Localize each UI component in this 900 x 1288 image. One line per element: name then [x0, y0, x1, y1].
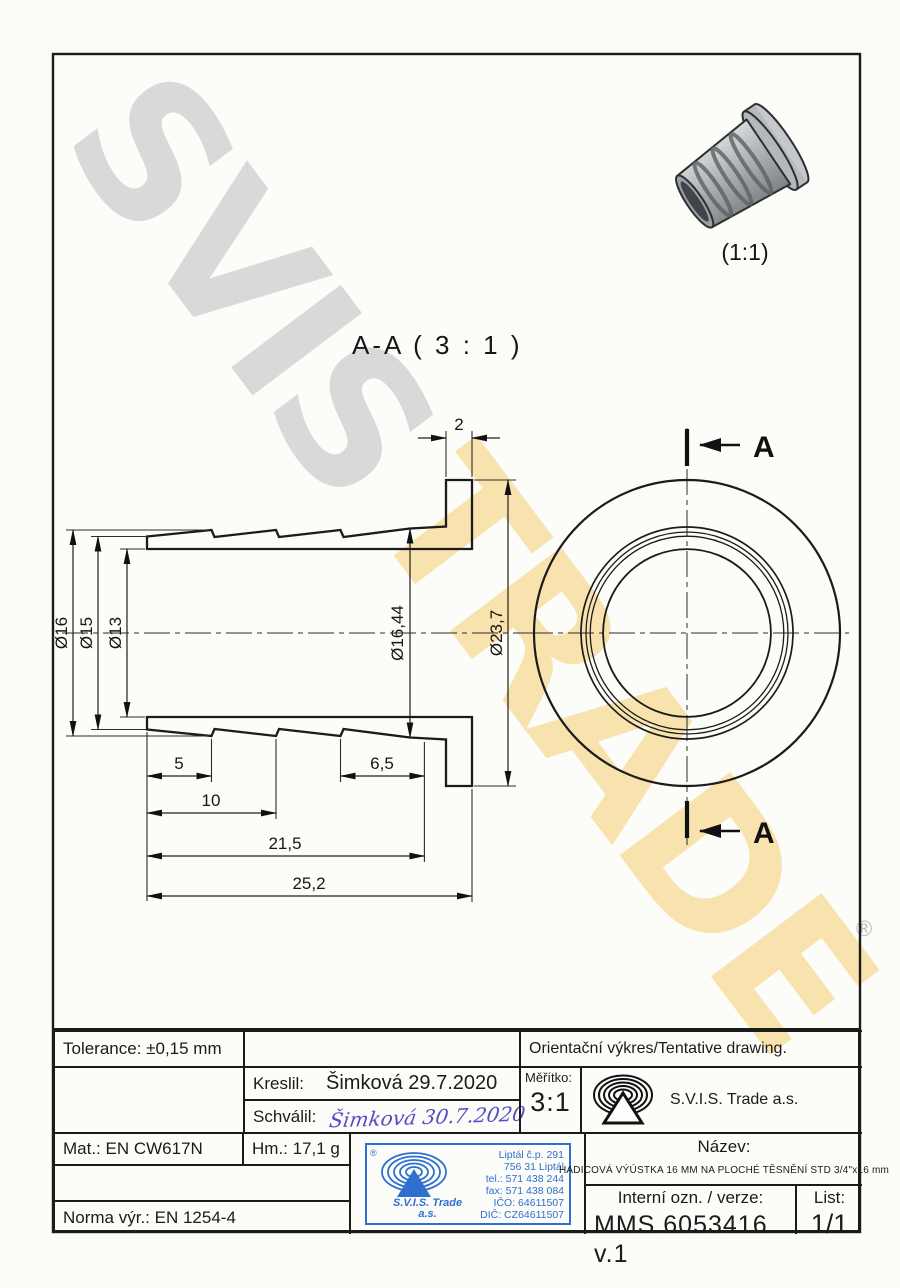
list-cell: List: 1/1 [795, 1184, 862, 1234]
dim-215-label: 21,5 [268, 834, 301, 853]
title-block: Tolerance: ±0,15 mm Orientační výkres/Te… [53, 1028, 860, 1232]
mat-text: Mat.: EN CW617N [63, 1139, 203, 1159]
kreslil-label: Kreslil: [253, 1074, 304, 1094]
mat-cell: Mat.: EN CW617N [55, 1132, 242, 1164]
company-stamp: ® S.V.I.S. Trade a.s. Liptá [365, 1143, 571, 1225]
meritko-cell: Měřítko: 3:1 [519, 1066, 580, 1132]
list-label: List: [814, 1188, 845, 1208]
dim-od1644-label: Ø16,44 [388, 605, 407, 661]
empty-cell-top [243, 1030, 519, 1066]
norma-text: Norma výr.: EN 1254-4 [63, 1208, 236, 1228]
norma-cell: Norma výr.: EN 1254-4 [55, 1200, 349, 1234]
company-name: S.V.I.S. Trade a.s. [670, 1091, 798, 1109]
empty-cell-mid [55, 1164, 349, 1200]
extension-lines [66, 431, 516, 902]
meritko-label: Měřítko: [525, 1070, 572, 1085]
svis-logo-black [590, 1071, 656, 1129]
scanned-drawing-page: SVIS TRADE ® [0, 0, 900, 1288]
dim-od237-label: Ø23,7 [487, 610, 506, 656]
empty-cell-left [55, 1066, 243, 1132]
hm-text: Hm.: 17,1 g [252, 1139, 340, 1159]
tolerance-text: Tolerance: ±0,15 mm [63, 1039, 222, 1059]
section-label-a-bottom: A [753, 817, 775, 850]
part-name: HADICOVÁ VÝÚSTKA 16 MM NA PLOCHÉ TĚSNĚNÍ… [559, 1165, 889, 1176]
schvalil-cell: Schválil: Šimková 30.7.2020 [243, 1099, 519, 1132]
kreslil-value: Šimková 29.7.2020 [326, 1072, 497, 1095]
dim-5-label: 5 [174, 754, 183, 773]
dim-10-label: 10 [202, 791, 221, 810]
dim-od15-label: Ø15 [77, 617, 96, 649]
dim-2-label: 2 [454, 415, 463, 434]
stamp-dic: DIČ: CZ64611507 [480, 1209, 564, 1221]
front-view: A A [527, 428, 849, 850]
svis-logo-blue [375, 1151, 453, 1201]
interni-value: MMS 6053416 v.1 [594, 1211, 787, 1269]
nazev-cell: Název: HADICOVÁ VÝÚSTKA 16 MM NA PLOCHÉ … [584, 1132, 862, 1184]
stamp-cell: ® S.V.I.S. Trade a.s. Liptá [349, 1132, 584, 1234]
stamp-fax: fax: 571 438 084 [480, 1185, 564, 1197]
stamp-company-line2: a.s. [393, 1209, 462, 1220]
section-view: Ø16 Ø15 Ø13 Ø16,44 Ø23,7 5 6,5 10 21,5 2… [52, 330, 532, 902]
stamp-address1: Liptál č.p. 291 [480, 1149, 564, 1161]
meritko-value: 3:1 [530, 1087, 571, 1118]
part-3d-view: (1:1) [662, 99, 816, 265]
section-label-a-top: A [753, 431, 775, 464]
schvalil-label: Schválil: [253, 1107, 316, 1127]
tolerance-cell: Tolerance: ±0,15 mm [55, 1030, 243, 1066]
stamp-address2: 756 31 Liptál [480, 1161, 564, 1173]
hm-cell: Hm.: 17,1 g [242, 1132, 349, 1164]
dim-65-label: 6,5 [370, 754, 394, 773]
dim-252-label: 25,2 [292, 874, 325, 893]
section-view-title: A-A ( 3 : 1 ) [352, 330, 523, 360]
detail-scale-label: (1:1) [721, 239, 768, 265]
section-upper-wall [147, 480, 472, 549]
interni-cell: Interní ozn. / verze: MMS 6053416 v.1 [584, 1184, 795, 1234]
kreslil-cell: Kreslil: Šimková 29.7.2020 [243, 1066, 519, 1099]
company-cell: S.V.I.S. Trade a.s. [580, 1066, 862, 1132]
interni-label: Interní ozn. / verze: [618, 1188, 764, 1208]
dim-od13-label: Ø13 [106, 617, 125, 649]
orientacni-text: Orientační výkres/Tentative drawing. [529, 1040, 787, 1058]
dim-od16-label: Ø16 [52, 617, 71, 649]
stamp-ico: IČO: 64611507 [480, 1197, 564, 1209]
schvalil-signature: Šimková 30.7.2020 [328, 1101, 527, 1132]
list-value: 1/1 [811, 1209, 849, 1240]
orientacni-cell: Orientační výkres/Tentative drawing. [519, 1030, 862, 1066]
stamp-tel: tel.: 571 438 244 [480, 1173, 564, 1185]
nazev-label: Název: [698, 1137, 751, 1157]
